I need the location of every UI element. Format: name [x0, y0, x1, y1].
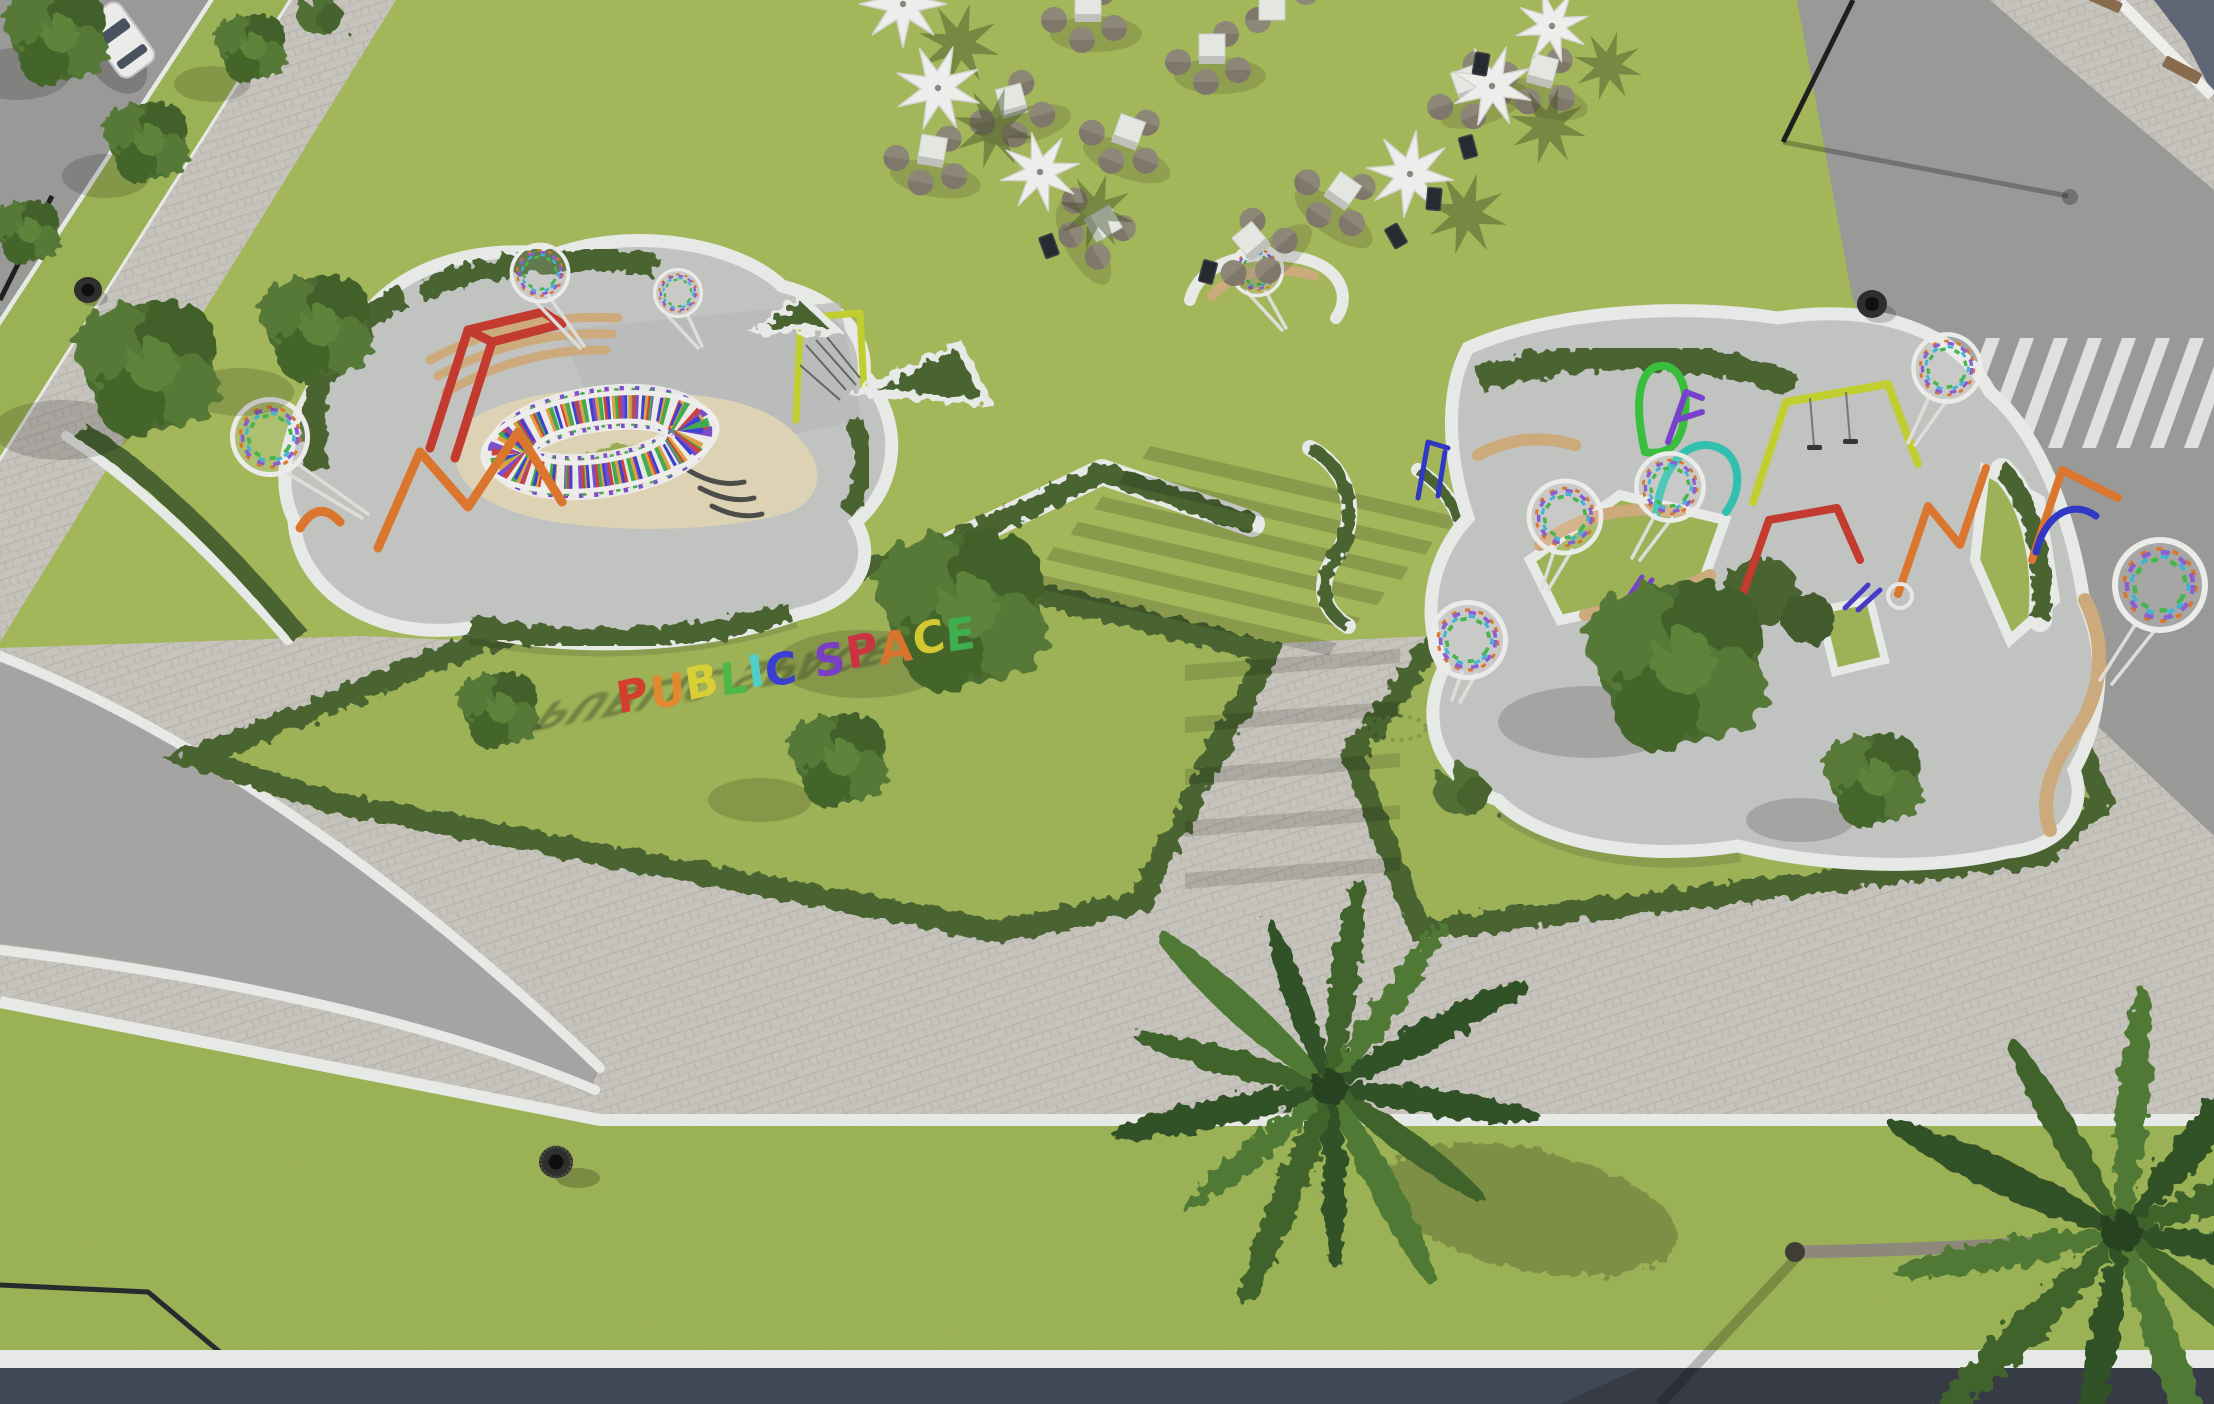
- scene-canvas: [0, 0, 2214, 1404]
- sign-letter: E: [944, 611, 978, 660]
- sign-letter: C: [910, 613, 949, 664]
- sign-letter: C: [764, 646, 800, 695]
- sign-letter: S: [812, 636, 847, 685]
- sign-letter: U: [648, 668, 687, 718]
- sign-letter: P: [614, 671, 653, 722]
- sign-letter: B: [683, 657, 723, 708]
- sign-letter: P: [843, 626, 882, 677]
- aerial-render-public-space: PUBLIC SPACE PUBLIC SPACE: [0, 0, 2214, 1404]
- sign-letter: L: [718, 655, 750, 704]
- sign-letter: A: [877, 623, 915, 673]
- render-grain-overlay: [0, 0, 2214, 1404]
